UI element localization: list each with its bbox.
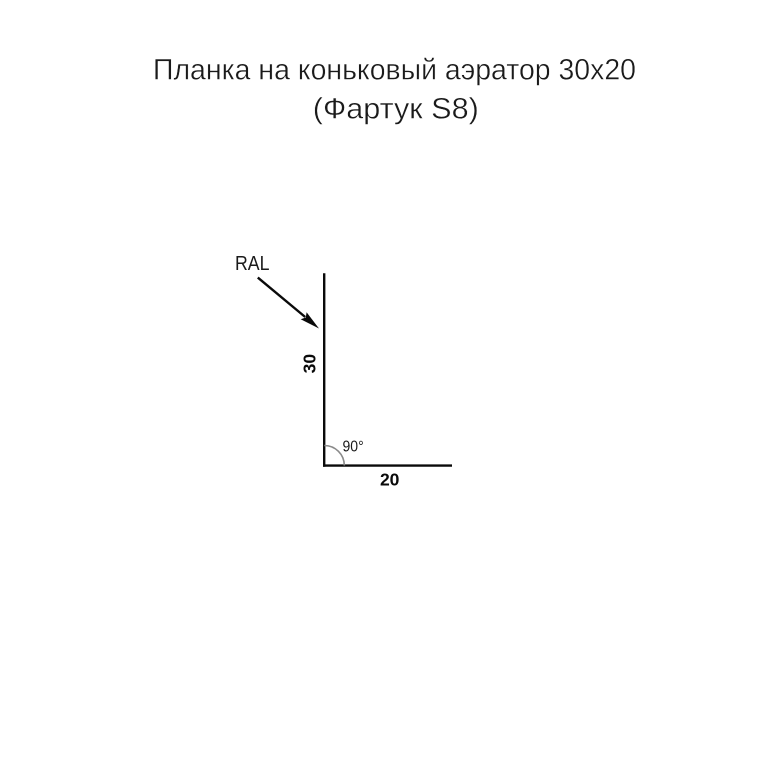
svg-text:20: 20 [380, 470, 400, 490]
svg-text:30: 30 [300, 354, 320, 374]
svg-text:90°: 90° [343, 438, 364, 455]
svg-text:(Фартук S8): (Фартук S8) [313, 93, 479, 126]
svg-text:Планка на коньковый аэратор 30: Планка на коньковый аэратор 30х20 [153, 54, 636, 87]
svg-text:RAL: RAL [235, 253, 270, 275]
